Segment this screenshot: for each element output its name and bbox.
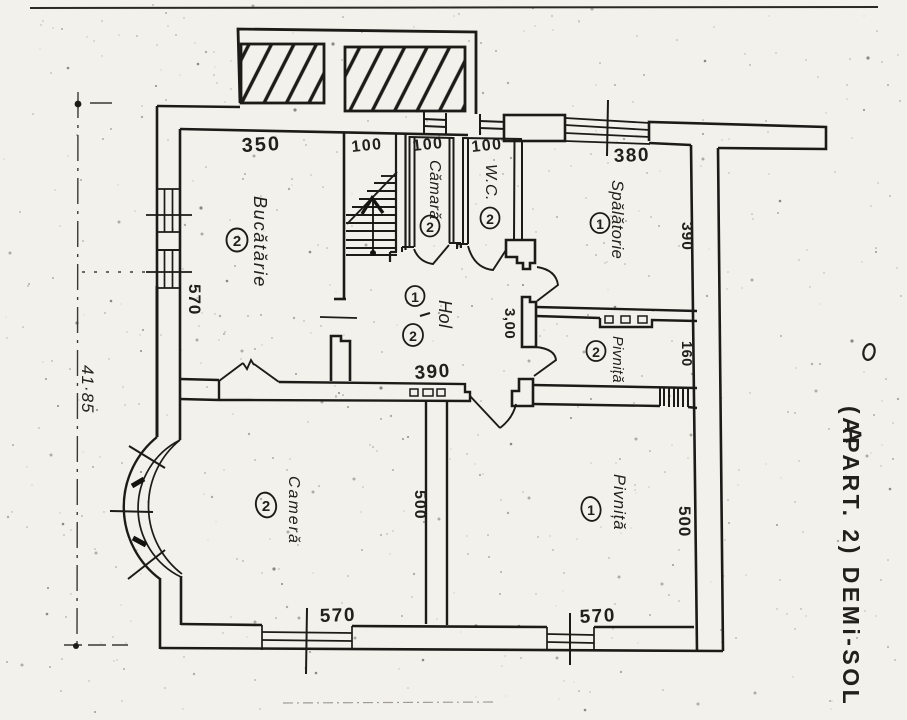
svg-text:Spălătorie: Spălătorie [608,180,626,259]
svg-text:Hol: Hol [435,300,455,329]
svg-text:2: 2 [592,344,600,360]
svg-text:2: 2 [233,233,241,250]
svg-text:41·85: 41·85 [78,365,97,413]
svg-text:570: 570 [185,284,204,315]
svg-text:2: 2 [262,498,270,515]
svg-text:2: 2 [486,211,494,227]
svg-text:1: 1 [411,289,419,305]
svg-text:Cămară: Cămară [426,160,443,220]
svg-text:100: 100 [471,136,504,156]
svg-text:W.C.: W.C. [482,164,499,201]
svg-text:380: 380 [613,145,650,167]
svg-text:Cameră: Cameră [285,476,302,545]
svg-text:3,00: 3,00 [501,308,518,339]
svg-text:1: 1 [587,502,595,518]
svg-text:390: 390 [414,361,452,384]
svg-text:Bucătărie: Bucătărie [250,196,270,288]
svg-text:500: 500 [411,490,428,520]
svg-text:2: 2 [409,328,417,344]
svg-text:570: 570 [319,605,356,627]
svg-text:A: A [840,426,867,444]
svg-text:Pivniță: Pivniță [609,336,625,383]
svg-text:100: 100 [351,136,384,156]
svg-text:2: 2 [426,219,434,235]
svg-text:500: 500 [675,506,694,537]
svg-text:390: 390 [678,222,695,251]
svg-text:Pivniță: Pivniță [610,474,628,531]
svg-text:570: 570 [579,605,616,628]
svg-text:(APART. 2) DEMi-SOL: (APART. 2) DEMi-SOL [838,406,864,707]
svg-text:100: 100 [412,135,445,155]
svg-text:350: 350 [241,133,281,157]
svg-text:160: 160 [678,341,694,367]
svg-text:1: 1 [596,216,604,232]
